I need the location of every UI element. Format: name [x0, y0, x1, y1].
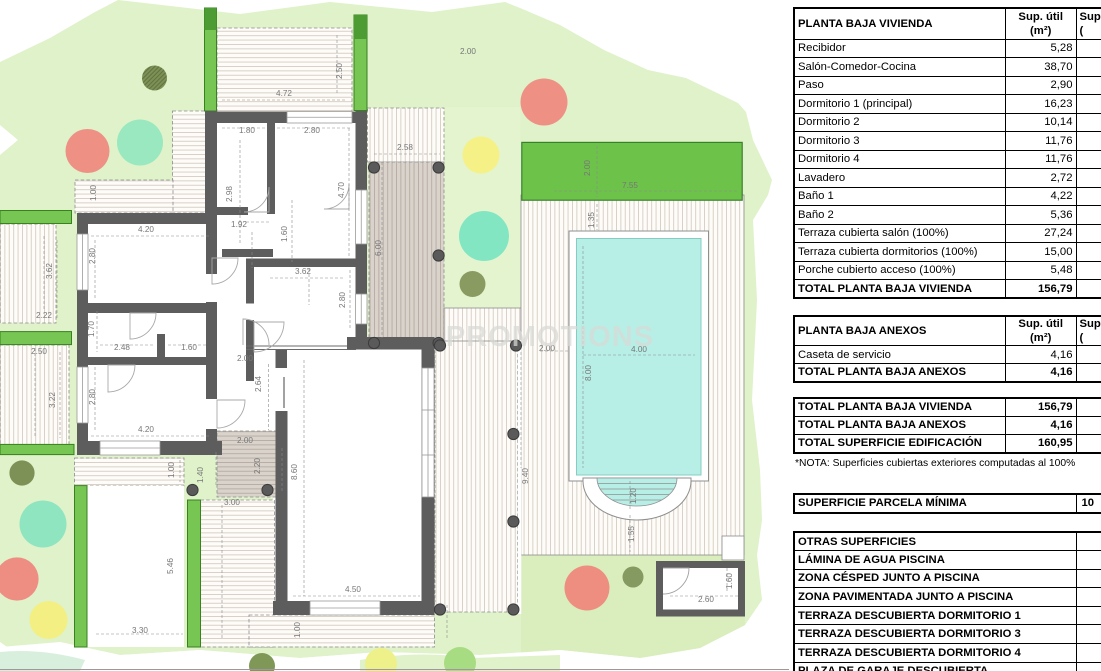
svg-text:6.00: 6.00 [374, 240, 383, 256]
svg-text:4.72: 4.72 [276, 89, 292, 98]
svg-text:1.20: 1.20 [629, 488, 638, 504]
svg-text:8.00: 8.00 [584, 365, 593, 381]
svg-text:2.00: 2.00 [583, 160, 592, 176]
svg-text:1.60: 1.60 [725, 573, 734, 589]
svg-text:2.80: 2.80 [88, 248, 97, 264]
svg-text:2.64: 2.64 [254, 376, 263, 392]
svg-text:7.55: 7.55 [622, 181, 638, 190]
svg-text:8.60: 8.60 [290, 464, 299, 480]
svg-text:1.70: 1.70 [87, 321, 96, 337]
svg-text:2.80: 2.80 [88, 389, 97, 405]
svg-text:1.60: 1.60 [280, 226, 289, 242]
svg-text:2.00: 2.00 [460, 47, 476, 56]
svg-text:5.46: 5.46 [166, 558, 175, 574]
svg-text:2.48: 2.48 [114, 343, 130, 352]
svg-text:2.80: 2.80 [338, 292, 347, 308]
svg-text:1.00: 1.00 [89, 185, 98, 201]
svg-text:3.62: 3.62 [45, 263, 54, 279]
svg-text:9.40: 9.40 [521, 468, 530, 484]
svg-text:PROMOTIONS: PROMOTIONS [446, 321, 654, 353]
svg-text:1.35: 1.35 [587, 212, 596, 228]
svg-text:3.22: 3.22 [48, 392, 57, 408]
svg-text:1.92: 1.92 [231, 220, 247, 229]
svg-text:2.20: 2.20 [253, 458, 262, 474]
svg-text:1.60: 1.60 [181, 343, 197, 352]
svg-text:4.70: 4.70 [337, 182, 346, 198]
svg-text:2.50: 2.50 [335, 63, 344, 79]
svg-text:1.00: 1.00 [167, 462, 176, 478]
svg-text:1.40: 1.40 [196, 467, 205, 483]
svg-text:1.00: 1.00 [293, 622, 302, 638]
svg-text:2.22: 2.22 [36, 311, 52, 320]
svg-text:2.50: 2.50 [31, 347, 47, 356]
svg-text:2.00: 2.00 [237, 436, 253, 445]
svg-text:1.55: 1.55 [627, 526, 636, 542]
svg-text:2.00: 2.00 [237, 354, 253, 363]
svg-text:2.98: 2.98 [225, 186, 234, 202]
svg-text:2.58: 2.58 [397, 143, 413, 152]
svg-text:2.80: 2.80 [304, 126, 320, 135]
svg-text:4.20: 4.20 [138, 225, 154, 234]
svg-text:1.80: 1.80 [239, 126, 255, 135]
svg-text:4.50: 4.50 [345, 585, 361, 594]
svg-text:2.60: 2.60 [698, 595, 714, 604]
svg-text:3.00: 3.00 [224, 498, 240, 507]
svg-text:4.20: 4.20 [138, 425, 154, 434]
svg-text:3.30: 3.30 [132, 626, 148, 635]
